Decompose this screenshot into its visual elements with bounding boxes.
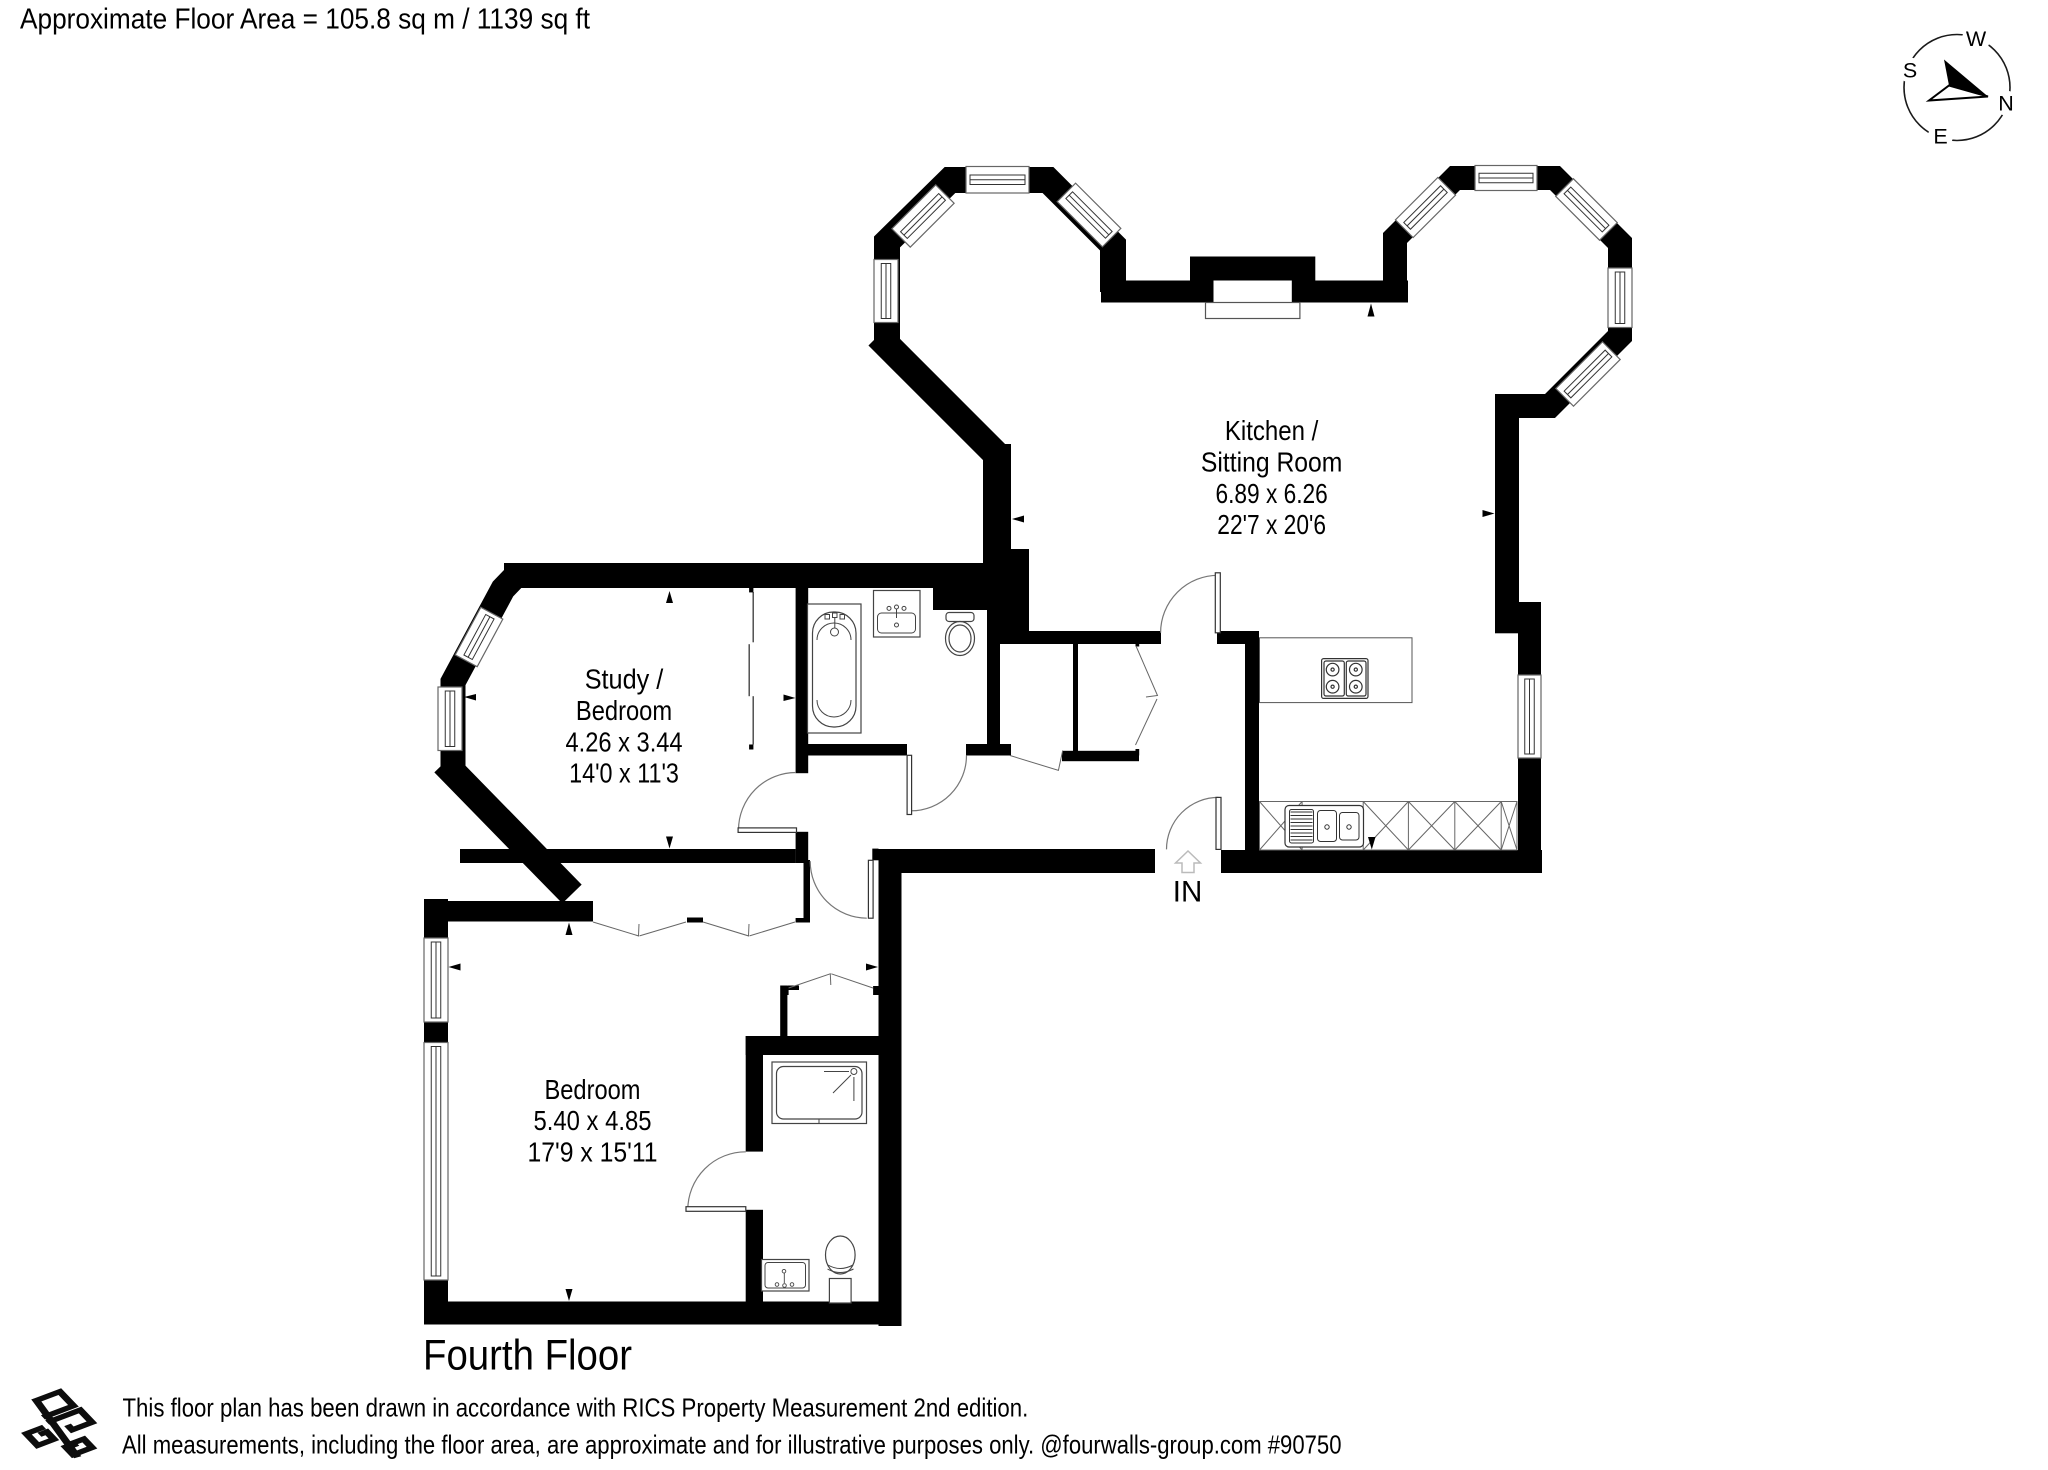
svg-text:E: E [1933, 125, 1947, 149]
svg-text:IN: IN [1173, 876, 1203, 909]
svg-text:Study /: Study / [585, 664, 664, 695]
svg-text:5.40 x 4.85: 5.40 x 4.85 [534, 1105, 652, 1136]
svg-text:Approximate Floor Area = 105.8: Approximate Floor Area = 105.8 sq m / 11… [20, 4, 590, 36]
svg-text:4.26 x 3.44: 4.26 x 3.44 [566, 726, 683, 757]
svg-text:N: N [1998, 92, 2014, 116]
svg-text:22'7 x 20'6: 22'7 x 20'6 [1217, 509, 1326, 540]
svg-text:Bedroom: Bedroom [545, 1074, 641, 1105]
svg-text:Bedroom: Bedroom [576, 695, 672, 726]
svg-text:W: W [1966, 27, 1987, 51]
svg-text:14'0 x 11'3: 14'0 x 11'3 [569, 758, 679, 789]
svg-text:6.89 x 6.26: 6.89 x 6.26 [1216, 478, 1328, 509]
svg-text:17'9 x 15'11: 17'9 x 15'11 [528, 1137, 658, 1168]
svg-text:Fourth Floor: Fourth Floor [423, 1333, 632, 1380]
svg-text:Kitchen /: Kitchen / [1225, 415, 1319, 446]
svg-text:S: S [1903, 59, 1917, 83]
svg-text:Sitting Room: Sitting Room [1201, 446, 1343, 477]
svg-text:This floor plan has been drawn: This floor plan has been drawn in accord… [123, 1393, 1029, 1423]
svg-text:All measurements, including th: All measurements, including the floor ar… [122, 1430, 1342, 1460]
